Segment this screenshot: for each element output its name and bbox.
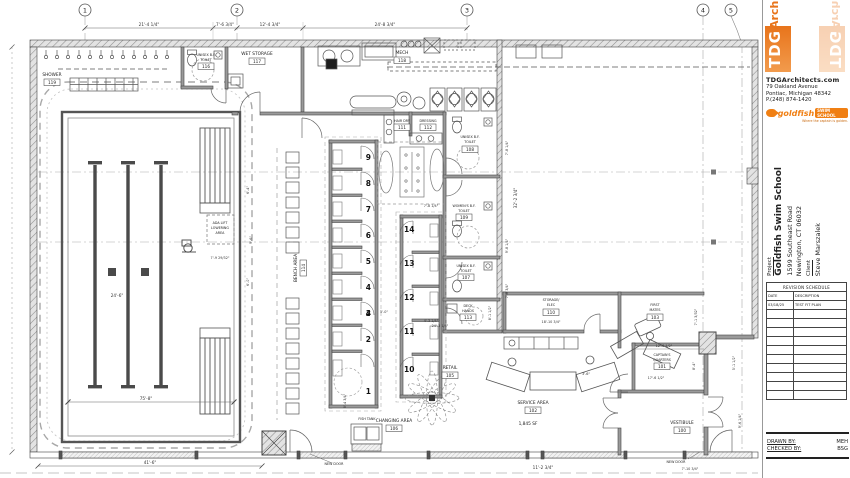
room-label-mech: MECH 118 bbox=[394, 50, 410, 64]
goldfish-logo: goldfish SWIM SCHOOL Where the captain i… bbox=[766, 108, 848, 123]
svg-text:8'-4": 8'-4" bbox=[692, 362, 696, 370]
floor-plan-drawing: 9 8 7 6 5 4 4 2 1 3 bbox=[0, 0, 762, 478]
stall-number: 9 bbox=[366, 153, 371, 162]
svg-text:7'-8 1/4": 7'-8 1/4" bbox=[505, 140, 509, 155]
stall-number: 5 bbox=[366, 257, 371, 266]
swim-school-band: SWIM SCHOOL bbox=[815, 108, 848, 118]
client-label: Client bbox=[806, 260, 812, 276]
svg-text:100: 100 bbox=[678, 428, 686, 433]
svg-text:24'-6": 24'-6" bbox=[111, 293, 124, 298]
room-label-deck-hands: DECK HANDS 113 bbox=[460, 304, 476, 321]
service-desk bbox=[486, 315, 681, 392]
svg-text:RETAIL: RETAIL bbox=[443, 365, 458, 371]
svg-text:108: 108 bbox=[466, 147, 474, 152]
project-address-1: 1599 Southeast Road bbox=[786, 206, 794, 276]
room-label-vestibule: VESTIBULE 100 bbox=[670, 420, 694, 434]
revision-date: 03/18/25 bbox=[767, 301, 794, 310]
structural-column bbox=[699, 332, 716, 354]
svg-text:QUARTERS: QUARTERS bbox=[653, 358, 671, 362]
room-label-hair-dry: HAIR DRY 111 bbox=[394, 119, 411, 131]
svg-text:7'-6 3/4": 7'-6 3/4" bbox=[216, 22, 234, 27]
firm-website: TDGArchitects.com bbox=[766, 76, 848, 84]
water-heaters bbox=[430, 88, 496, 111]
title-block: TDG Archi TDG Archi TDGArchitects.com 79… bbox=[762, 0, 850, 478]
drawn-by-label: DRAWN BY: bbox=[767, 439, 796, 445]
room-label-unisex-toilet-108: UNISEX B.F. TOILET 108 bbox=[460, 135, 479, 153]
room-label-service-area: SERVICE AREA 102 1,845 SF bbox=[517, 400, 548, 427]
svg-text:114: 114 bbox=[301, 264, 306, 272]
svg-text:WOMEN'S B.F.: WOMEN'S B.F. bbox=[452, 204, 475, 208]
project-label: Project bbox=[767, 257, 773, 276]
svg-text:BENCH AREA: BENCH AREA bbox=[293, 254, 299, 282]
shower-area bbox=[44, 50, 170, 91]
svg-text:3'-6": 3'-6" bbox=[582, 372, 590, 376]
svg-text:5'-1 1/2": 5'-1 1/2" bbox=[732, 355, 736, 370]
stall-number: 1 bbox=[366, 387, 371, 396]
firm-address-block: TDGArchitects.com 79 Oakland Avenue Pont… bbox=[766, 76, 848, 104]
svg-text:TOILET: TOILET bbox=[457, 209, 471, 213]
svg-text:DECK: DECK bbox=[463, 304, 473, 308]
svg-text:ELEC: ELEC bbox=[547, 303, 556, 307]
grid-bubbles: 1 2 3 4 5 bbox=[79, 4, 737, 16]
svg-text:106: 106 bbox=[390, 426, 398, 431]
room-label-unisex-toilet-116: UNISEX B.F. TOILET 116 bbox=[196, 53, 215, 70]
signoff-block: DRAWN BY: MEH CHECKED BY: BSG bbox=[766, 432, 849, 459]
revision-row: 03/18/25 TEST FIT PLAN bbox=[767, 301, 847, 310]
fish-tank-label: FISH TANK bbox=[358, 417, 376, 421]
revision-empty-rows bbox=[767, 310, 847, 400]
changing-stalls-left bbox=[325, 137, 381, 411]
svg-text:18'-10 3/4": 18'-10 3/4" bbox=[542, 320, 561, 324]
revision-col-desc: DESCRIPTION bbox=[794, 292, 847, 301]
room-label-wet-storage: WET STORAGE 117 bbox=[241, 51, 273, 65]
svg-text:UNISEX B.F.: UNISEX B.F. bbox=[196, 53, 215, 57]
stall-number: 2 bbox=[366, 335, 371, 344]
svg-text:9'-6 1/4": 9'-6 1/4" bbox=[738, 413, 742, 428]
svg-text:7'-8 1/4": 7'-8 1/4" bbox=[424, 204, 439, 208]
goldfish-icon bbox=[766, 109, 776, 117]
room-label-unisex-toilet-107: UNISEX B.F. TOILET 107 bbox=[456, 264, 475, 281]
svg-text:117: 117 bbox=[253, 59, 261, 64]
stall-number: 14 bbox=[404, 225, 414, 234]
room-label-changing-area: CHANGING AREA 106 bbox=[376, 418, 413, 432]
new-door-note: NEW DOOR bbox=[667, 460, 687, 464]
svg-text:7'-9 29/32": 7'-9 29/32" bbox=[211, 256, 230, 260]
pool-steps-lower bbox=[200, 338, 230, 414]
svg-text:6'-4": 6'-4" bbox=[246, 186, 250, 194]
checked-by-label: CHECKED BY: bbox=[767, 446, 801, 452]
svg-text:11'-2 3/4": 11'-2 3/4" bbox=[533, 465, 554, 470]
svg-text:111: 111 bbox=[398, 125, 406, 130]
firm-address-1: 79 Oakland Avenue bbox=[766, 84, 848, 91]
svg-text:SHOWER: SHOWER bbox=[42, 72, 61, 78]
svg-text:SERVICE AREA: SERVICE AREA bbox=[517, 400, 548, 406]
svg-text:113: 113 bbox=[464, 315, 472, 320]
stall-number: 3 bbox=[366, 309, 371, 318]
svg-text:41'-6": 41'-6" bbox=[144, 460, 157, 465]
revision-schedule: REVISION SCHEDULE DATE DESCRIPTION 03/18… bbox=[766, 282, 847, 400]
firm-logo: TDG Archi TDG Archi bbox=[765, 2, 845, 72]
changing-tables bbox=[378, 142, 444, 204]
pool-lane-lines bbox=[95, 165, 161, 385]
svg-text:110: 110 bbox=[547, 310, 555, 315]
svg-text:105: 105 bbox=[446, 373, 454, 378]
revision-title: REVISION SCHEDULE bbox=[767, 283, 847, 292]
svg-text:8'-1 1/2": 8'-1 1/2" bbox=[488, 305, 492, 320]
stall-number: 4 bbox=[366, 283, 371, 292]
project-name: Goldfish Swim School bbox=[774, 167, 784, 276]
grid-bubble-5: 5 bbox=[729, 7, 733, 15]
checked-by-value: BSG bbox=[837, 446, 848, 452]
svg-text:116: 116 bbox=[202, 64, 210, 69]
grid-bubble-3: 3 bbox=[465, 7, 469, 15]
svg-text:TOILET: TOILET bbox=[463, 140, 477, 144]
svg-text:CAPTAIN'S: CAPTAIN'S bbox=[654, 353, 671, 357]
wall-column bbox=[747, 168, 758, 184]
ada-note: ADA LIFT bbox=[213, 221, 229, 225]
svg-text:118: 118 bbox=[398, 58, 406, 63]
ada-note: LOWERING bbox=[211, 226, 229, 230]
firm-phone: P.(248) 874-1420 bbox=[766, 97, 848, 104]
svg-text:8'-4 3/4": 8'-4 3/4" bbox=[343, 393, 347, 408]
stall-number: 13 bbox=[404, 259, 414, 268]
svg-text:12'-6 1/2": 12'-6 1/2" bbox=[656, 344, 673, 348]
grid-bubble-1: 1 bbox=[83, 7, 87, 15]
floor-plan-sheet: 9 8 7 6 5 4 4 2 1 3 bbox=[0, 0, 850, 478]
svg-text:TOILET: TOILET bbox=[459, 269, 473, 273]
room-label-shower: SHOWER 119 bbox=[42, 72, 61, 86]
svg-text:MATES: MATES bbox=[649, 308, 660, 312]
svg-text:4'-3 1/4": 4'-3 1/4" bbox=[424, 319, 439, 323]
shower-heads bbox=[44, 50, 168, 59]
svg-text:109: 109 bbox=[460, 215, 468, 220]
mech-equipment bbox=[318, 38, 750, 115]
svg-text:24'-8 3/4": 24'-8 3/4" bbox=[375, 22, 396, 27]
svg-text:WET STORAGE: WET STORAGE bbox=[241, 51, 273, 57]
svg-text:7'-10 3/4": 7'-10 3/4" bbox=[682, 467, 699, 471]
stall-numbers-left: 9 8 7 6 5 4 4 2 1 3 bbox=[366, 153, 371, 396]
pool-steps-upper bbox=[200, 128, 230, 203]
svg-text:FIRST: FIRST bbox=[650, 303, 660, 307]
svg-text:6'-0": 6'-0" bbox=[246, 278, 250, 286]
firm-logo-mirror: TDG Archi bbox=[805, 2, 845, 72]
pool-deck-boundary bbox=[40, 82, 277, 448]
client-name: Steve Marszalek bbox=[814, 223, 822, 276]
room-label-storage-elec: STORAGE/ ELEC 110 bbox=[543, 298, 561, 316]
pool bbox=[62, 112, 240, 442]
svg-text:103: 103 bbox=[651, 315, 659, 320]
project-info: Project Goldfish Swim School 1599 Southe… bbox=[767, 148, 822, 276]
stall-number: 6 bbox=[366, 231, 371, 240]
svg-text:9'-8 1/4": 9'-8 1/4" bbox=[505, 238, 509, 253]
revision-col-date: DATE bbox=[767, 292, 794, 301]
svg-text:21'-4 1/4": 21'-4 1/4" bbox=[139, 22, 160, 27]
room-label-bench-area: BENCH AREA 114 bbox=[293, 254, 307, 282]
service-area-sf: 1,845 SF bbox=[519, 421, 538, 427]
svg-text:17'-6 1/2": 17'-6 1/2" bbox=[648, 376, 665, 380]
grid-bubble-2: 2 bbox=[235, 7, 239, 15]
svg-text:STORAGE/: STORAGE/ bbox=[543, 298, 561, 302]
revision-desc: TEST FIT PLAN bbox=[794, 301, 847, 310]
svg-text:7'-1 3/32": 7'-1 3/32" bbox=[694, 308, 698, 325]
svg-text:9'-6": 9'-6" bbox=[249, 236, 253, 244]
room-label-captains-quarters: CAPTAIN'S QUARTERS 101 bbox=[653, 353, 671, 370]
fish-tank bbox=[351, 424, 382, 451]
svg-text:UNISEX B.F.: UNISEX B.F. bbox=[456, 264, 475, 268]
project-address-2: Newington, CT 06032 bbox=[795, 206, 803, 276]
svg-text:DRESSING: DRESSING bbox=[419, 119, 437, 123]
svg-text:CHANGING AREA: CHANGING AREA bbox=[376, 418, 413, 424]
stall-number: 11 bbox=[404, 327, 414, 336]
room-label-retail: RETAIL 105 bbox=[442, 365, 458, 379]
svg-text:107: 107 bbox=[462, 275, 470, 280]
svg-text:UNISEX B.F.: UNISEX B.F. bbox=[460, 135, 479, 139]
svg-text:12'-4 3/4": 12'-4 3/4" bbox=[260, 22, 281, 27]
svg-text:101: 101 bbox=[658, 364, 666, 369]
stall-number: 10 bbox=[404, 365, 414, 374]
svg-text:32'-2 3/4": 32'-2 3/4" bbox=[513, 188, 518, 209]
pool-drain bbox=[141, 268, 149, 276]
room-label-first-mates: FIRST MATES 103 bbox=[647, 303, 663, 321]
svg-text:119: 119 bbox=[48, 80, 56, 85]
new-door-note: NEW DOOR bbox=[325, 462, 345, 466]
svg-text:24'-3 1/4": 24'-3 1/4" bbox=[432, 324, 449, 328]
ada-note: AREA bbox=[216, 231, 226, 235]
logo-archi-text: Archi bbox=[768, 0, 794, 29]
stall-number: 7 bbox=[366, 205, 371, 214]
svg-text:MECH: MECH bbox=[396, 50, 409, 56]
drawn-by-value: MEH bbox=[836, 439, 848, 445]
room-label-dressing: DRESSING 112 bbox=[419, 119, 437, 131]
stall-number: 12 bbox=[404, 293, 414, 302]
room-label-womens-toilet: WOMEN'S B.F. TOILET 109 bbox=[452, 204, 475, 221]
svg-text:TOILET: TOILET bbox=[199, 58, 213, 62]
grid-bubble-4: 4 bbox=[701, 7, 705, 15]
svg-text:75'-8": 75'-8" bbox=[140, 396, 153, 401]
firm-address-2: Pontiac, Michigan 48342 bbox=[766, 91, 848, 98]
logo-tdg-text: TDG bbox=[766, 26, 792, 72]
svg-text:HAIR DRY: HAIR DRY bbox=[394, 119, 411, 123]
stall-number: 8 bbox=[366, 179, 371, 188]
svg-text:5'-0": 5'-0" bbox=[380, 310, 388, 314]
pool-drain bbox=[108, 268, 116, 276]
goldfish-wordmark: goldfish bbox=[778, 109, 814, 118]
svg-text:VESTIBULE: VESTIBULE bbox=[670, 420, 694, 426]
svg-text:7'-8 3/4": 7'-8 3/4" bbox=[505, 283, 509, 298]
svg-text:HANDS: HANDS bbox=[462, 309, 474, 313]
stall-numbers-right: 14 13 12 11 10 bbox=[404, 225, 414, 374]
goldfish-tagline: Where the captain is golden. bbox=[766, 119, 848, 123]
svg-text:112: 112 bbox=[424, 125, 432, 130]
svg-text:102: 102 bbox=[529, 408, 537, 413]
